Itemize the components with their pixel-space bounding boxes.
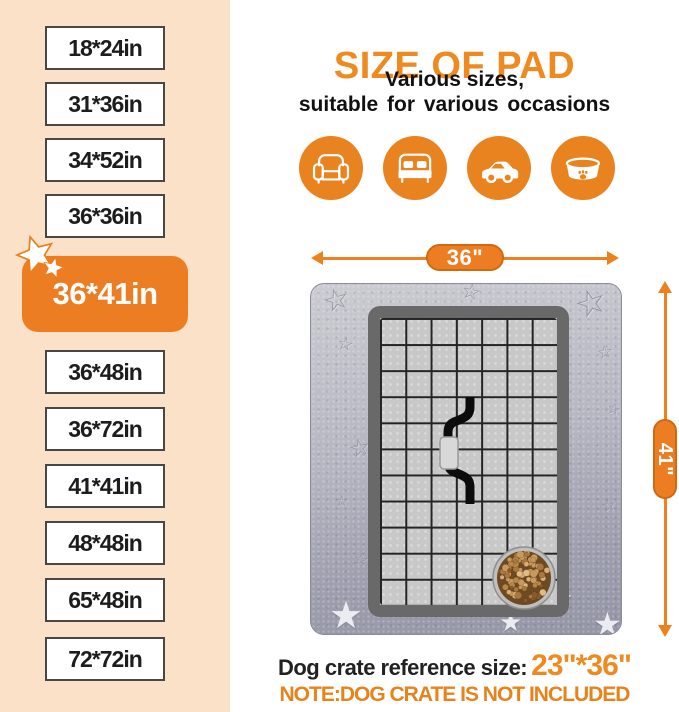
arrow-up-icon [658, 281, 672, 293]
size-option: 41*41in [45, 464, 165, 508]
star-icon: ☆ [352, 551, 370, 570]
star-icon: ★ [593, 608, 622, 635]
star-icon: ★ [329, 596, 363, 634]
occasion-icons-row [299, 136, 615, 200]
arrow-down-icon [658, 625, 672, 637]
star-icon: ☆ [320, 283, 354, 319]
size-list-panel: 18*24in 31*36in 34*52in 36*36in 36*41in … [0, 0, 230, 712]
size-of-pad-infographic: 18*24in 31*36in 34*52in 36*36in 36*41in … [0, 0, 679, 712]
pad-photo: ☆ ☆ ☆ ☆ ☆ ☆ ☆ ☆ ☆ ☆ ★ ★ ★ ★ [310, 283, 622, 635]
star-icon: ☆ [336, 335, 355, 356]
size-option: 36*48in [45, 350, 165, 394]
star-icon: ☆ [596, 343, 614, 363]
footer-note: Dog crate reference size:23"*36" NOTE:DO… [230, 650, 679, 706]
size-option: 34*52in [45, 138, 165, 182]
reference-label: Dog crate reference size: [278, 655, 527, 680]
size-option: 36*72in [45, 407, 165, 451]
height-label: 41" [653, 419, 677, 499]
food-bowl [491, 545, 557, 611]
star-icon: ☆ [335, 494, 348, 509]
crate-not-included-note: NOTE:DOG CRATE IS NOT INCLUDED [230, 684, 679, 706]
crate-latch-handle [426, 391, 486, 516]
width-label: 36" [426, 244, 504, 271]
subtitle-line-1: Various sizes, [230, 68, 679, 92]
arrow-right-icon [607, 251, 619, 265]
star-icon [6, 234, 70, 290]
bed-icon [383, 136, 447, 200]
height-dimension: 41" [650, 281, 679, 637]
size-option: 65*48in [45, 578, 165, 622]
size-option: 72*72in [45, 637, 165, 681]
pet-bed-icon [551, 136, 615, 200]
car-icon [467, 136, 531, 200]
star-icon: ☆ [459, 283, 483, 306]
width-dimension: 36" [311, 244, 619, 272]
arrow-left-icon [311, 251, 323, 265]
subtitle-line-2: suitable for various occasions [230, 93, 679, 117]
sofa-icon [299, 136, 363, 200]
star-icon: ☆ [600, 497, 618, 516]
star-icon: ☆ [570, 283, 612, 326]
size-option: 31*36in [45, 82, 165, 126]
size-option: 36*36in [45, 194, 165, 238]
size-option: 48*48in [45, 521, 165, 565]
star-icon: ☆ [605, 401, 622, 419]
reference-size-value: 23"*36" [531, 649, 631, 682]
size-option: 18*24in [45, 26, 165, 70]
reference-size-line: Dog crate reference size:23"*36" [230, 650, 679, 684]
